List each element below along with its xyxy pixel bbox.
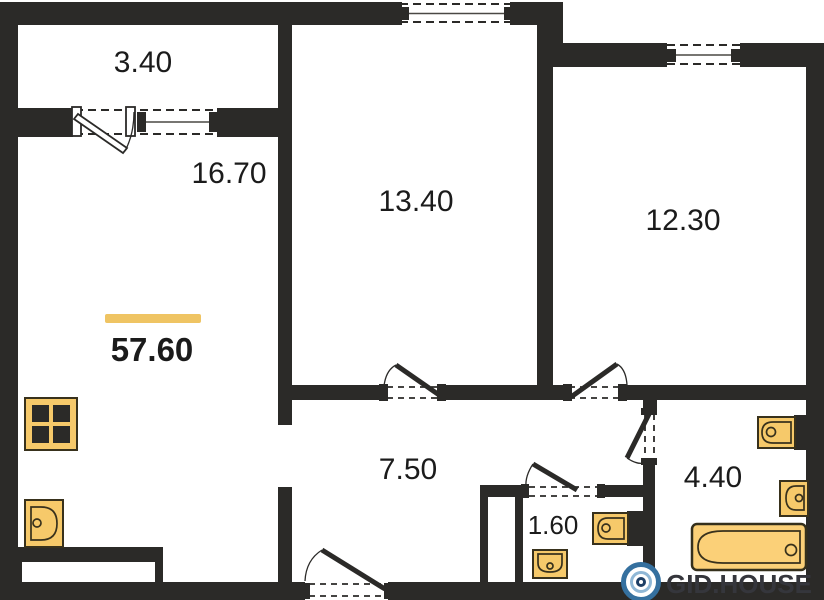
kitchen-counter bbox=[15, 547, 163, 597]
wall-segment bbox=[0, 108, 73, 137]
total-area-label: 57.60 bbox=[111, 331, 194, 368]
watermark: GID.HOUSE bbox=[624, 565, 812, 600]
wall-segment bbox=[278, 487, 292, 582]
wall-segment bbox=[537, 25, 553, 397]
bathroom-sink-icon bbox=[780, 481, 808, 516]
accent-bar bbox=[105, 314, 201, 323]
wall-segment bbox=[443, 385, 565, 400]
bathtub-icon bbox=[692, 524, 806, 570]
entrance-door bbox=[302, 550, 392, 600]
door-wc bbox=[521, 464, 605, 498]
watermark-text: GID.HOUSE bbox=[666, 569, 812, 599]
room-area-label-bedroom-2: 12.30 bbox=[645, 204, 720, 237]
wall-segment bbox=[0, 2, 402, 25]
wall-segment bbox=[480, 485, 525, 497]
wall-segment bbox=[0, 2, 18, 600]
room-area-label-living-kitchen: 16.70 bbox=[191, 157, 266, 190]
balcony-door bbox=[72, 107, 135, 153]
room-area-label-hallway: 7.50 bbox=[379, 453, 437, 486]
watermark-logo-icon bbox=[624, 565, 659, 600]
door-bathroom bbox=[627, 408, 657, 465]
wall-segment bbox=[217, 108, 278, 137]
door-bedroom-2 bbox=[563, 364, 627, 401]
walls bbox=[0, 2, 824, 600]
wc-sink-icon bbox=[533, 550, 567, 578]
floor-plan: 3.40 16.70 13.40 12.30 7.50 1.60 4.40 57… bbox=[0, 0, 824, 600]
room-area-label-wc: 1.60 bbox=[528, 510, 579, 540]
stove-icon bbox=[25, 398, 77, 450]
wall-segment bbox=[625, 385, 824, 400]
balcony-partition bbox=[72, 107, 218, 153]
room-area-label-bedroom-1: 13.40 bbox=[378, 185, 453, 218]
window-bedroom-2 bbox=[667, 43, 740, 67]
room-area-label-balcony: 3.40 bbox=[114, 46, 172, 79]
kitchen-sink-icon bbox=[25, 500, 63, 547]
bathroom-toilet-icon bbox=[758, 415, 810, 450]
duct-shaft-wall bbox=[515, 497, 523, 582]
window-bedroom-1 bbox=[400, 2, 513, 25]
wall-segment bbox=[292, 385, 383, 400]
wall-segment bbox=[600, 485, 643, 497]
door-bedroom-1 bbox=[379, 365, 446, 401]
room-area-label-bathroom: 4.40 bbox=[684, 461, 742, 494]
wall-segment bbox=[548, 43, 667, 67]
wc-toilet-icon bbox=[593, 511, 644, 546]
total-area-block: 57.60 bbox=[105, 314, 201, 368]
duct-shaft-wall bbox=[480, 497, 488, 582]
wall-segment bbox=[278, 2, 292, 425]
